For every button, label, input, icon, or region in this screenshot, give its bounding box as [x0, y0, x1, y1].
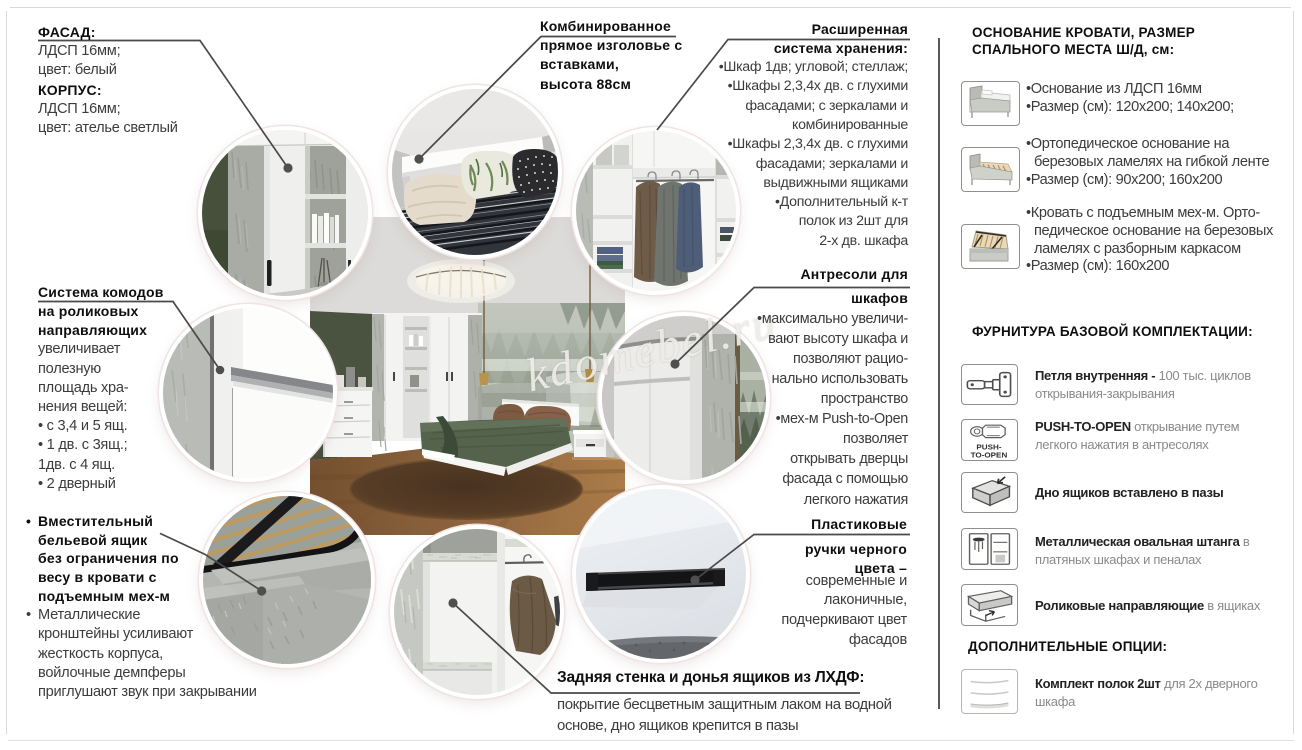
svg-text:TO-OPEN: TO-OPEN: [971, 451, 1008, 459]
